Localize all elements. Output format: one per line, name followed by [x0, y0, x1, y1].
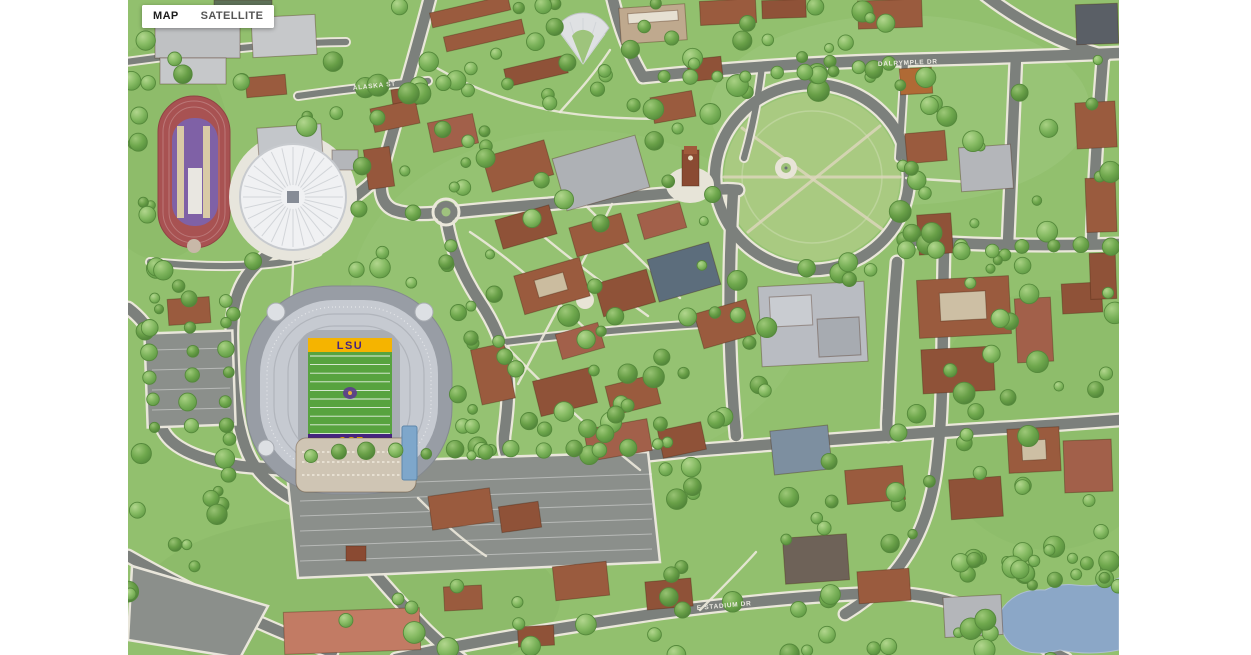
tree-icon	[927, 241, 944, 258]
tree-icon	[589, 365, 600, 376]
tree-icon	[944, 364, 957, 377]
tree-icon	[771, 66, 784, 79]
tree-icon	[791, 602, 807, 618]
tree-icon	[391, 0, 407, 15]
tree-icon	[376, 246, 389, 259]
tree-icon	[1093, 55, 1102, 64]
tree-icon	[207, 504, 227, 524]
tree-icon	[627, 99, 640, 112]
tree-icon	[436, 75, 451, 90]
tree-icon	[189, 561, 200, 572]
tree-icon	[797, 64, 813, 80]
tree-icon	[219, 396, 231, 408]
tree-icon	[181, 291, 197, 307]
tree-icon	[485, 250, 494, 259]
tree-icon	[221, 317, 232, 328]
tree-icon	[842, 272, 856, 286]
tree-icon	[665, 31, 679, 45]
tree-icon	[503, 440, 519, 456]
tree-icon	[349, 262, 364, 277]
tree-icon	[648, 628, 662, 642]
tree-icon	[450, 579, 464, 593]
building	[762, 0, 807, 19]
tree-icon	[233, 74, 249, 90]
building	[283, 608, 420, 655]
roundabout	[433, 199, 459, 225]
tree-icon	[534, 172, 550, 188]
tree-icon	[512, 597, 523, 608]
tree-icon	[479, 126, 490, 137]
tree-icon	[466, 301, 476, 311]
tree-icon	[1111, 579, 1125, 593]
tree-icon	[419, 52, 439, 72]
tree-icon	[559, 54, 576, 71]
map-viewport: LSU LSU ALASKA ST DALRYMPLE DR E STADIUM…	[0, 0, 1251, 655]
tree-icon	[1011, 560, 1029, 578]
tree-icon	[131, 107, 148, 124]
tree-icon	[730, 308, 745, 323]
tree-icon	[450, 305, 466, 321]
tree-icon	[389, 443, 403, 457]
tree-icon	[907, 404, 926, 423]
tree-icon	[1067, 553, 1077, 563]
tree-icon	[1000, 390, 1016, 406]
tree-icon	[592, 215, 609, 232]
tree-icon	[986, 244, 1000, 258]
tree-icon	[1054, 382, 1064, 392]
building	[939, 291, 986, 321]
tree-icon	[986, 264, 995, 273]
tree-icon	[330, 107, 343, 120]
tree-icon	[1018, 425, 1039, 446]
tree-icon	[478, 444, 493, 459]
tree-icon	[554, 190, 573, 209]
tree-icon	[890, 424, 907, 441]
tree-icon	[462, 135, 475, 148]
tree-icon	[802, 645, 813, 655]
tree-icon	[1032, 196, 1042, 206]
tree-icon	[1094, 524, 1109, 539]
tree-icon	[963, 131, 984, 152]
map-view-button[interactable]: MAP	[142, 5, 190, 28]
tree-icon	[897, 241, 915, 259]
tree-icon	[493, 335, 505, 347]
satellite-view-button[interactable]: SATELLITE	[190, 5, 275, 28]
tree-icon	[733, 31, 752, 50]
tree-icon	[889, 201, 911, 223]
tree-icon	[1102, 287, 1113, 298]
tree-icon	[449, 386, 466, 403]
tree-icon	[973, 466, 986, 479]
tree-icon	[1015, 239, 1029, 253]
tree-icon	[618, 364, 637, 383]
tree-icon	[672, 123, 683, 134]
tree-icon	[598, 65, 611, 78]
tree-icon	[184, 322, 195, 333]
tree-icon	[967, 552, 982, 567]
tree-icon	[658, 71, 670, 83]
tree-icon	[554, 402, 574, 422]
tree-icon	[700, 104, 721, 125]
tree-icon	[960, 428, 973, 441]
tree-icon	[449, 182, 459, 192]
tree-icon	[358, 442, 375, 459]
tree-icon	[683, 69, 698, 84]
building	[552, 561, 609, 600]
tree-icon	[881, 534, 899, 552]
tree-icon	[953, 243, 970, 260]
tree-icon	[513, 2, 524, 13]
tree-icon	[877, 14, 895, 32]
campus-map-canvas[interactable]: LSU LSU ALASKA ST DALRYMPLE DR E STADIUM…	[0, 0, 1251, 655]
tree-icon	[983, 345, 1001, 363]
tree-icon	[439, 255, 454, 270]
building	[498, 501, 541, 532]
building	[949, 476, 1004, 520]
tree-icon	[536, 443, 551, 458]
tree-icon	[590, 82, 604, 96]
tree-icon	[1019, 284, 1039, 304]
tree-icon	[1086, 98, 1098, 110]
tree-icon	[712, 71, 723, 82]
tree-icon	[1015, 480, 1030, 495]
tree-icon	[445, 240, 457, 252]
tree-icon	[596, 425, 614, 443]
tree-icon	[1044, 545, 1055, 556]
tree-icon	[370, 110, 385, 125]
tree-icon	[465, 62, 478, 75]
tree-icon	[406, 277, 417, 288]
building	[817, 317, 861, 357]
tree-icon	[219, 418, 233, 432]
tree-icon	[864, 264, 877, 277]
tree-icon	[520, 413, 537, 430]
tree-icon	[1088, 382, 1104, 398]
tree-icon	[218, 341, 234, 357]
building	[346, 546, 366, 561]
tree-icon	[245, 253, 262, 270]
tree-icon	[172, 280, 185, 293]
tree-icon	[660, 588, 679, 607]
tree-icon	[141, 344, 158, 361]
tree-icon	[1048, 240, 1060, 252]
tree-icon	[821, 585, 841, 605]
flagpole-plaza	[775, 157, 797, 179]
tree-icon	[351, 201, 367, 217]
tree-icon	[727, 271, 747, 291]
tree-icon	[643, 366, 664, 387]
tree-icon	[821, 453, 837, 469]
tree-icon	[464, 331, 478, 345]
tree-icon	[174, 65, 193, 84]
tree-icon	[825, 44, 834, 53]
tree-icon	[904, 161, 918, 175]
tree-icon	[653, 439, 664, 450]
building	[770, 425, 832, 475]
tree-icon	[740, 71, 751, 82]
tree-icon	[139, 206, 156, 223]
tree-icon	[543, 96, 557, 110]
tree-icon	[867, 642, 880, 655]
tree-icon	[621, 40, 639, 58]
tree-icon	[895, 80, 906, 91]
tree-icon	[664, 567, 680, 583]
tree-icon	[168, 52, 182, 66]
tree-icon	[606, 308, 623, 325]
tree-icon	[970, 219, 979, 228]
tree-icon	[662, 437, 673, 448]
tree-icon	[577, 330, 595, 348]
tree-icon	[546, 18, 563, 35]
tree-icon	[154, 305, 163, 314]
tree-icon	[403, 622, 425, 644]
tree-icon	[1099, 572, 1110, 583]
tree-icon	[592, 443, 607, 458]
tree-icon	[219, 295, 232, 308]
tree-icon	[182, 540, 192, 550]
end-zone-north-label: LSU	[337, 340, 364, 352]
tree-icon	[709, 307, 721, 319]
building	[245, 74, 287, 97]
tree-icon	[185, 368, 199, 382]
tree-icon	[124, 588, 136, 600]
tree-icon	[653, 417, 667, 431]
tree-icon	[667, 489, 688, 510]
tree-icon	[513, 618, 525, 630]
tree-icon	[662, 175, 675, 188]
tree-icon	[339, 613, 353, 627]
tree-icon	[465, 419, 479, 433]
tree-icon	[147, 393, 160, 406]
tree-icon	[797, 52, 808, 63]
stadium-glass-tower	[402, 426, 417, 480]
tree-icon	[919, 187, 932, 200]
tree-icon	[953, 382, 975, 404]
building	[1075, 3, 1118, 44]
tree-icon	[446, 440, 464, 458]
tree-icon	[819, 626, 836, 643]
building	[959, 144, 1014, 192]
tree-icon	[297, 116, 317, 136]
tree-icon	[129, 502, 145, 518]
tree-icon	[811, 512, 823, 524]
tree-icon	[467, 451, 476, 460]
tree-icon	[523, 209, 541, 227]
building	[905, 130, 947, 163]
tree-icon	[1037, 221, 1058, 242]
tree-icon	[215, 449, 235, 469]
tree-icon	[921, 223, 942, 244]
building	[857, 568, 911, 604]
tree-icon	[305, 450, 318, 463]
tree-icon	[154, 261, 173, 280]
tree-icon	[659, 463, 672, 476]
tree-icon	[421, 449, 432, 460]
tree-icon	[679, 308, 697, 326]
tree-icon	[1099, 551, 1120, 572]
tree-icon	[596, 326, 606, 336]
tree-icon	[579, 420, 597, 438]
tree-icon	[937, 106, 957, 126]
tree-icon	[965, 277, 976, 288]
tree-icon	[149, 422, 159, 432]
tree-icon	[1027, 351, 1049, 373]
tree-icon	[886, 483, 905, 502]
track-stadium	[158, 96, 230, 253]
tree-icon	[1040, 119, 1058, 137]
tree-icon	[398, 83, 419, 104]
tree-icon	[223, 433, 236, 446]
tree-icon	[638, 20, 651, 33]
tree-icon	[521, 636, 541, 655]
tree-icon	[1011, 84, 1028, 101]
tree-icon	[743, 336, 756, 349]
tree-icon	[1104, 302, 1126, 324]
tree-icon	[620, 439, 637, 456]
tree-icon	[141, 320, 158, 337]
tree-icon	[502, 78, 514, 90]
tree-icon	[825, 495, 838, 508]
tree-icon	[476, 149, 495, 168]
tree-icon	[370, 257, 391, 278]
tree-icon	[779, 487, 799, 507]
tree-icon	[852, 61, 865, 74]
tree-icon	[122, 71, 141, 90]
tree-icon	[643, 99, 664, 120]
tree-icon	[654, 349, 670, 365]
tree-icon	[684, 478, 702, 496]
tree-icon	[461, 158, 471, 168]
tree-icon	[607, 406, 624, 423]
tree-icon	[150, 293, 160, 303]
tree-icon	[838, 35, 853, 50]
tree-icon	[924, 476, 936, 488]
tree-icon	[437, 638, 459, 655]
tree-icon	[1099, 367, 1112, 380]
map-type-control: MAP SATELLITE	[142, 5, 274, 28]
tree-icon	[678, 367, 689, 378]
tree-icon	[807, 0, 824, 15]
tree-icon	[1071, 569, 1082, 580]
tree-icon	[588, 279, 603, 294]
tree-icon	[908, 529, 918, 539]
building	[1085, 177, 1117, 232]
tree-icon	[798, 259, 816, 277]
tree-icon	[535, 0, 552, 14]
tree-icon	[708, 412, 725, 429]
tree-icon	[865, 13, 875, 23]
tree-icon	[828, 66, 839, 77]
tree-icon	[221, 467, 236, 482]
tree-icon	[705, 186, 721, 202]
tree-icon	[921, 97, 939, 115]
tree-icon	[1073, 237, 1089, 253]
tree-icon	[781, 534, 792, 545]
tree-icon	[527, 33, 545, 51]
tree-icon	[1028, 555, 1039, 566]
tree-icon	[688, 58, 699, 69]
tree-icon	[991, 309, 1009, 327]
tree-icon	[968, 404, 984, 420]
tree-icon	[179, 393, 197, 411]
tree-icon	[400, 166, 410, 176]
tree-icon	[184, 419, 198, 433]
tree-icon	[740, 16, 756, 32]
tree-icon	[1083, 495, 1095, 507]
tree-icon	[697, 261, 707, 271]
tree-icon	[1100, 161, 1121, 182]
tree-icon	[558, 305, 580, 327]
tree-icon	[699, 217, 708, 226]
tree-icon	[839, 253, 858, 272]
tree-icon	[1014, 257, 1031, 274]
tree-icon	[645, 132, 664, 151]
tree-icon	[1047, 572, 1062, 587]
tree-icon	[141, 76, 156, 91]
tree-icon	[1080, 557, 1093, 570]
building	[782, 534, 849, 584]
tree-icon	[508, 361, 524, 377]
tree-icon	[353, 157, 371, 175]
tree-icon	[497, 349, 513, 365]
tree-icon	[405, 601, 418, 614]
tree-icon	[681, 457, 701, 477]
tree-icon	[136, 31, 155, 50]
tree-icon	[223, 367, 234, 378]
tree-icon	[880, 638, 896, 654]
tree-icon	[468, 405, 478, 415]
tree-icon	[1102, 238, 1119, 255]
tree-icon	[576, 614, 597, 635]
tree-icon	[762, 34, 774, 46]
tree-icon	[129, 133, 147, 151]
tree-icon	[674, 602, 690, 618]
tree-icon	[392, 593, 404, 605]
tiger-stadium: LSU LSU	[246, 286, 452, 494]
tree-icon	[405, 205, 421, 221]
tree-icon	[486, 286, 502, 302]
tree-icon	[131, 444, 151, 464]
tree-icon	[168, 538, 182, 552]
tree-icon	[143, 371, 156, 384]
tree-icon	[757, 318, 777, 338]
tree-icon	[916, 67, 936, 87]
tree-icon	[435, 121, 451, 137]
tree-icon	[975, 609, 996, 630]
building	[1063, 439, 1113, 493]
tree-icon	[537, 422, 551, 436]
tree-icon	[187, 345, 199, 357]
tree-icon	[323, 52, 343, 72]
tree-icon	[650, 0, 661, 9]
tree-icon	[491, 48, 502, 59]
tree-icon	[566, 440, 583, 457]
tree-icon	[758, 384, 771, 397]
tree-icon	[331, 444, 346, 459]
